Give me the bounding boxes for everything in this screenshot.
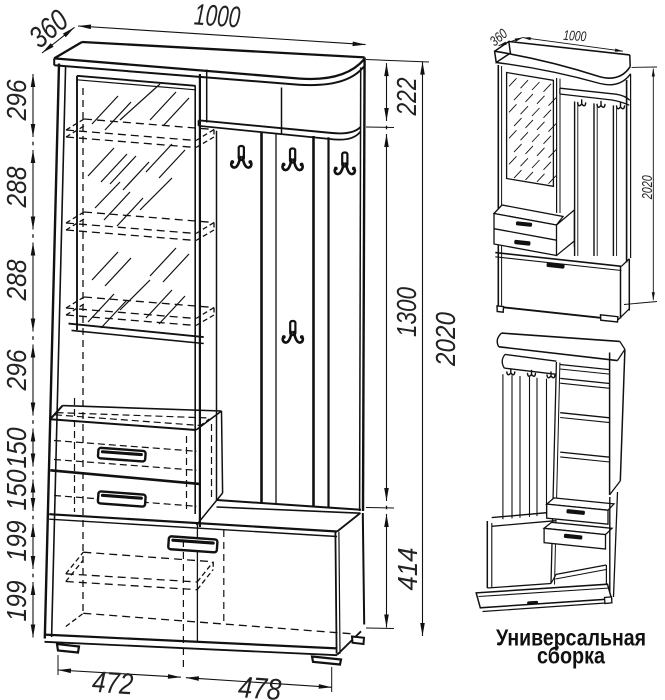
svg-text:1000: 1000 xyxy=(563,27,587,45)
svg-text:199: 199 xyxy=(1,521,32,562)
svg-text:2020: 2020 xyxy=(639,175,656,200)
svg-text:199: 199 xyxy=(1,581,32,622)
svg-text:1000: 1000 xyxy=(193,0,241,35)
svg-text:222: 222 xyxy=(391,77,422,116)
svg-text:2020: 2020 xyxy=(430,312,461,367)
svg-text:478: 478 xyxy=(237,671,282,700)
svg-text:1300: 1300 xyxy=(391,287,422,337)
svg-text:288: 288 xyxy=(1,166,32,208)
svg-text:288: 288 xyxy=(1,259,32,301)
svg-text:150: 150 xyxy=(1,427,32,468)
svg-text:414: 414 xyxy=(392,548,423,591)
svg-text:296: 296 xyxy=(1,79,32,121)
svg-text:сборка: сборка xyxy=(537,643,605,669)
svg-text:150: 150 xyxy=(1,469,32,510)
svg-text:296: 296 xyxy=(1,349,32,391)
svg-text:472: 472 xyxy=(91,666,134,700)
